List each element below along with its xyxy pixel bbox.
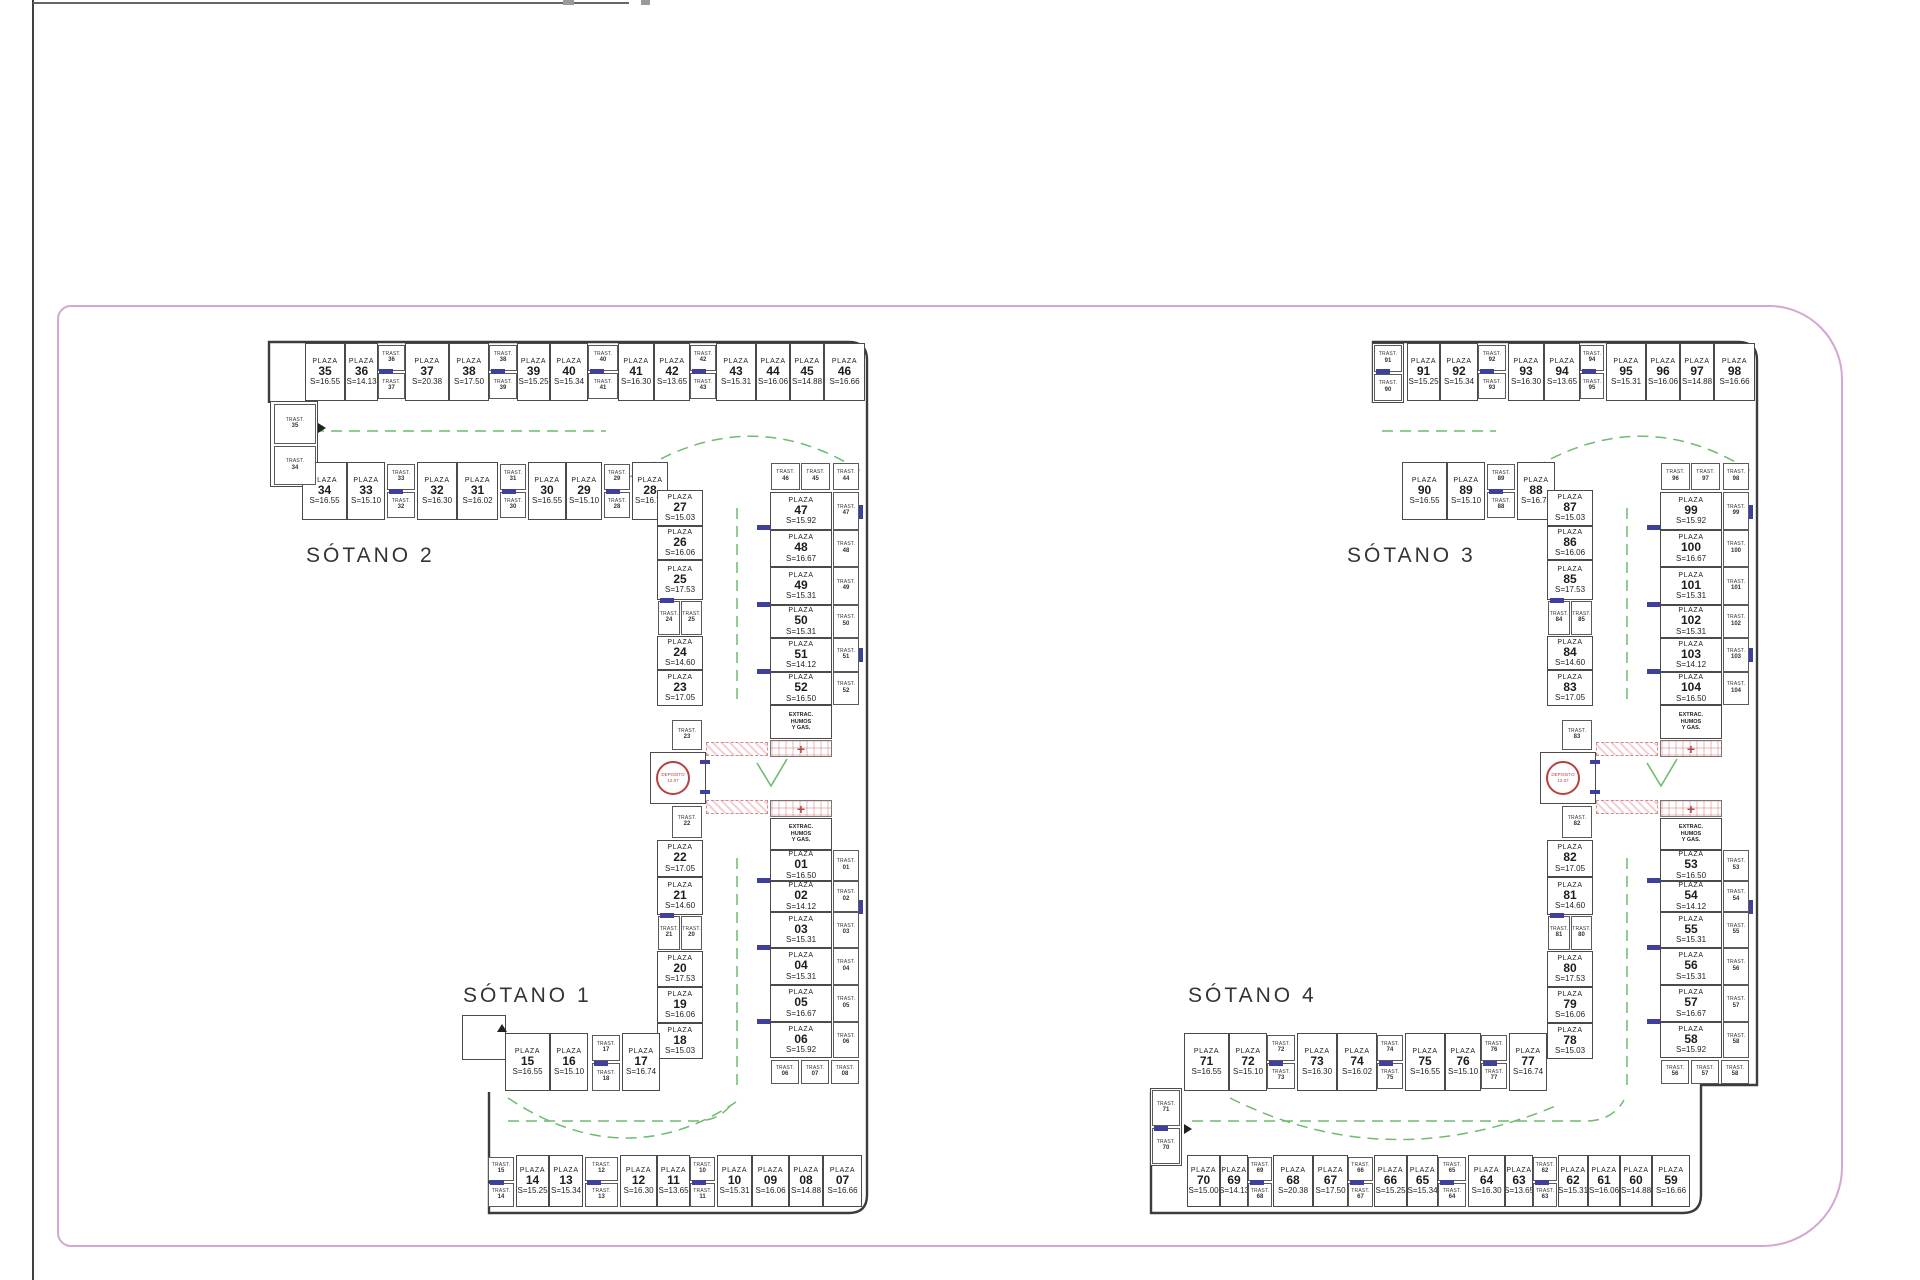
plaza-46: PLAZA46S=16.66 <box>824 343 865 401</box>
pn-text: 79 <box>1563 998 1576 1011</box>
pn-text: 65 <box>1416 1174 1429 1187</box>
extraction-room: EXTRAC.HUMOSY GAS. <box>1660 705 1722 739</box>
pa-text: S=14.12 <box>786 903 816 911</box>
plaza-87: PLAZA87S=15.03 <box>1547 490 1593 526</box>
pa-text: S=15.92 <box>1676 517 1706 525</box>
plaza-22: PLAZA22S=17.05 <box>657 840 703 877</box>
trast-31: TRAST.31 <box>500 464 526 490</box>
cross-text: + <box>797 742 805 756</box>
pa-text: S=15.10 <box>351 497 381 505</box>
pn-text: 48 <box>794 541 807 554</box>
pa-text: S=16.55 <box>532 497 562 505</box>
trast-06: TRAST.06 <box>771 1060 799 1084</box>
plaza-56: PLAZA56S=15.31 <box>1660 948 1722 985</box>
plaza-100: PLAZA100S=16.67 <box>1660 530 1722 567</box>
trast-01: TRAST.01 <box>833 850 859 881</box>
tn-text: 01 <box>843 865 850 872</box>
exl-text: EXTRAC. <box>1679 712 1703 719</box>
plaza-11: PLAZA11S=13.65 <box>657 1155 690 1207</box>
pn-text: 07 <box>836 1174 849 1187</box>
stair-hatch-area: + <box>1660 740 1722 757</box>
pa-text: S=15.03 <box>665 1047 695 1055</box>
stair-core-room: DEPOSITO12.07 <box>650 752 706 804</box>
plaza-13: PLAZA13S=15.34 <box>549 1155 583 1207</box>
pn-text: 17 <box>634 1055 647 1068</box>
trast-20: TRAST.20 <box>681 916 702 950</box>
floor-plan: PLAZA35S=16.55PLAZA36S=14.13PLAZA37S=20.… <box>0 0 1920 1280</box>
tn-text: 54 <box>1733 896 1740 903</box>
pa-text: S=15.92 <box>786 517 816 525</box>
level-label: SÓTANO 1 <box>463 984 592 1008</box>
plaza-07: PLAZA07S=16.66 <box>823 1155 862 1207</box>
trast-07: TRAST.07 <box>801 1060 829 1084</box>
tn-text: 62 <box>1542 1168 1549 1175</box>
door-mark <box>1550 913 1564 918</box>
pa-text: S=17.05 <box>1555 694 1585 702</box>
pa-text: S=16.74 <box>626 1068 656 1076</box>
exl-text: HUMOS <box>791 831 811 838</box>
pa-text: S=16.55 <box>512 1068 542 1076</box>
door-mark <box>859 505 863 519</box>
door-mark <box>1480 369 1494 374</box>
tn-text: 51 <box>843 654 850 661</box>
plaza-74: PLAZA74S=16.02 <box>1337 1033 1377 1091</box>
trast-72: TRAST.72 <box>1267 1035 1295 1061</box>
door-mark <box>660 598 674 603</box>
tn-text: 77 <box>1491 1075 1498 1082</box>
door-mark <box>1535 1180 1549 1185</box>
trast-10: TRAST.10 <box>690 1157 715 1181</box>
pa-text: S=15.34 <box>554 378 584 386</box>
pn-text: 02 <box>794 889 807 902</box>
plaza-101: PLAZA101S=15.31 <box>1660 567 1722 605</box>
trast-35: TRAST.35 <box>274 404 316 444</box>
pa-text: S=16.30 <box>1471 1187 1501 1195</box>
tn-text: 88 <box>1498 504 1505 511</box>
pa-text: S=15.25 <box>518 378 548 386</box>
pa-text: S=15.34 <box>1444 378 1474 386</box>
pn-text: 14 <box>526 1174 539 1187</box>
stair-core-circle: DEPOSITO12.07 <box>1546 761 1580 795</box>
pn-text: 94 <box>1555 365 1568 378</box>
plaza-104: PLAZA104S=16.50 <box>1660 672 1722 705</box>
door-mark <box>859 648 863 662</box>
door-mark <box>587 1180 601 1185</box>
plaza-102: PLAZA102S=15.31 <box>1660 605 1722 638</box>
trast-68: TRAST.68 <box>1248 1183 1272 1207</box>
pa-text: S=16.06 <box>1589 1187 1619 1195</box>
pa-text: S=16.66 <box>1656 1187 1686 1195</box>
pn-text: 37 <box>420 365 433 378</box>
exl-text: HUMOS <box>1681 831 1701 838</box>
tn-text: 73 <box>1278 1075 1285 1082</box>
tn-text: 63 <box>1542 1194 1549 1201</box>
pn-text: 51 <box>794 648 807 661</box>
plaza-14: PLAZA14S=15.25 <box>516 1155 549 1207</box>
level-label: SÓTANO 2 <box>306 544 435 568</box>
pa-text: S=13.65 <box>1547 378 1577 386</box>
plaza-99: PLAZA99S=15.92 <box>1660 492 1722 530</box>
pa-text: S=15.25 <box>1375 1187 1405 1195</box>
trast-62: TRAST.62 <box>1533 1157 1557 1181</box>
tn-text: 35 <box>292 423 299 430</box>
pn-text: 77 <box>1521 1055 1534 1068</box>
pa-text: S=15.92 <box>786 1046 816 1054</box>
tn-text: 71 <box>1163 1107 1170 1114</box>
plaza-82: PLAZA82S=17.05 <box>1547 840 1593 877</box>
pn-text: 81 <box>1563 889 1576 902</box>
plaza-62: PLAZA62S=15.31 <box>1558 1155 1588 1207</box>
plaza-30: PLAZA30S=16.55 <box>528 462 566 520</box>
plaza-65: PLAZA65S=15.34 <box>1407 1155 1438 1207</box>
pa-text: S=16.30 <box>623 1187 653 1195</box>
trast-57: TRAST.57 <box>1723 985 1749 1022</box>
plaza-03: PLAZA03S=15.31 <box>770 912 832 948</box>
plaza-91: PLAZA91S=15.25 <box>1407 343 1440 401</box>
pn-text: 75 <box>1418 1055 1431 1068</box>
tn-text: 56 <box>1672 1071 1679 1078</box>
trast-50: TRAST.50 <box>833 605 859 638</box>
pa-text: S=16.50 <box>786 695 816 703</box>
pn-text: 27 <box>673 501 686 514</box>
ramp-hatch-area <box>706 800 768 814</box>
pn-text: 23 <box>673 681 686 694</box>
plaza-80: PLAZA80S=17.53 <box>1547 951 1593 987</box>
entry-arrow-right <box>1184 1124 1192 1134</box>
trast-13: TRAST.13 <box>585 1183 618 1207</box>
plaza-01: PLAZA01S=16.50 <box>770 850 832 881</box>
door-mark <box>1154 1126 1168 1131</box>
pn-text: 58 <box>1684 1033 1697 1046</box>
pn-text: 47 <box>794 504 807 517</box>
trast-25: TRAST.25 <box>681 601 702 635</box>
trast-06: TRAST.06 <box>833 1022 859 1058</box>
tn-text: 96 <box>1672 476 1679 483</box>
pn-text: 28 <box>643 484 656 497</box>
plaza-20: PLAZA20S=17.53 <box>657 951 703 987</box>
exl-text: HUMOS <box>1681 719 1701 726</box>
plaza-43: PLAZA43S=15.31 <box>716 343 756 401</box>
plaza-89: PLAZA89S=15.10 <box>1447 462 1485 520</box>
pa-text: S=16.67 <box>786 1010 816 1018</box>
pn-text: 86 <box>1563 536 1576 549</box>
tn-text: 76 <box>1491 1047 1498 1054</box>
trast-02: TRAST.02 <box>833 881 859 912</box>
door-mark <box>1749 900 1753 914</box>
pn-text: 16 <box>562 1055 575 1068</box>
tn-text: 94 <box>1589 357 1596 364</box>
pn-text: 100 <box>1681 541 1701 554</box>
pn-text: 59 <box>1664 1174 1677 1187</box>
pa-text: S=15.10 <box>554 1068 584 1076</box>
pn-text: 26 <box>673 536 686 549</box>
trast-23: TRAST.23 <box>672 720 702 750</box>
pa-text: S=15.00 <box>1188 1187 1218 1195</box>
pa-text: S=15.31 <box>719 1187 749 1195</box>
plaza-70: PLAZA70S=15.00 <box>1187 1155 1220 1207</box>
plaza-47: PLAZA47S=15.92 <box>770 492 832 530</box>
plaza-93: PLAZA93S=16.30 <box>1508 343 1544 401</box>
trast-36: TRAST.36 <box>378 345 405 371</box>
pa-text: S=17.50 <box>454 378 484 386</box>
pa-text: S=15.10 <box>1451 497 1481 505</box>
pa-text: S=16.30 <box>1511 378 1541 386</box>
plaza-44: PLAZA44S=16.06 <box>756 343 790 401</box>
stair-hatch-area: + <box>770 800 832 817</box>
ramp-hatch-area <box>1596 742 1658 756</box>
plaza-32: PLAZA32S=16.30 <box>417 462 457 520</box>
trast-101: TRAST.101 <box>1723 567 1749 605</box>
pn-text: 96 <box>1656 365 1669 378</box>
plaza-36: PLAZA36S=14.13 <box>345 343 378 401</box>
cross-text: + <box>797 802 805 816</box>
pa-text: S=16.74 <box>1513 1068 1543 1076</box>
pn-text: 64 <box>1480 1174 1493 1187</box>
plaza-103: PLAZA103S=14.12 <box>1660 638 1722 672</box>
trast-08: TRAST.08 <box>831 1060 859 1084</box>
tn-text: 84 <box>1556 617 1563 624</box>
pa-text: S=15.31 <box>1558 1187 1588 1195</box>
tn-text: 39 <box>500 385 507 392</box>
pa-text: S=20.38 <box>412 378 442 386</box>
door-mark <box>1647 602 1660 607</box>
plaza-42: PLAZA42S=13.65 <box>654 343 690 401</box>
tn-text: 47 <box>843 510 850 517</box>
trast-76: TRAST.76 <box>1481 1035 1507 1061</box>
pn-text: 90 <box>1418 484 1431 497</box>
pa-text: S=16.02 <box>1342 1068 1372 1076</box>
pa-text: S=15.31 <box>786 973 816 981</box>
pn-text: 44 <box>766 365 779 378</box>
pa-text: S=16.55 <box>1410 1068 1440 1076</box>
trast-40: TRAST.40 <box>588 345 618 371</box>
plaza-95: PLAZA95S=15.31 <box>1606 343 1646 401</box>
pa-text: S=14.60 <box>665 902 695 910</box>
exl-text: Y GAS. <box>1682 725 1701 732</box>
plaza-64: PLAZA64S=16.30 <box>1468 1155 1505 1207</box>
trast-74: TRAST.74 <box>1377 1035 1403 1061</box>
pa-text: S=15.31 <box>786 628 816 636</box>
plaza-94: PLAZA94S=13.65 <box>1544 343 1580 401</box>
pa-text: S=15.34 <box>1407 1187 1437 1195</box>
tn-text: 102 <box>1731 621 1741 628</box>
pa-text: S=16.67 <box>1676 1010 1706 1018</box>
pa-text: S=15.25 <box>517 1187 547 1195</box>
trast-97: TRAST.97 <box>1691 463 1720 490</box>
pn-text: 22 <box>673 851 686 864</box>
pn-text: 102 <box>1681 614 1701 627</box>
tn-text: 30 <box>510 504 517 511</box>
door-mark <box>594 1061 608 1066</box>
trast-43: TRAST.43 <box>690 373 716 399</box>
pn-text: 80 <box>1563 962 1576 975</box>
tn-text: 14 <box>498 1194 505 1201</box>
pn-text: 89 <box>1459 484 1472 497</box>
ramp-hatch-area <box>706 742 768 756</box>
trast-58: TRAST.58 <box>1723 1022 1749 1058</box>
trast-18: TRAST.18 <box>592 1063 620 1091</box>
trast-64: TRAST.64 <box>1438 1183 1466 1207</box>
pn-text: 30 <box>540 484 553 497</box>
tn-text: 03 <box>843 929 850 936</box>
pa-text: S=17.53 <box>1555 586 1585 594</box>
trast-63: TRAST.63 <box>1533 1183 1557 1207</box>
tn-text: 65 <box>1449 1168 1456 1175</box>
trast-83: TRAST.83 <box>1562 720 1592 750</box>
pn-text: 74 <box>1350 1055 1363 1068</box>
plaza-10: PLAZA10S=15.31 <box>717 1155 752 1207</box>
trast-30: TRAST.30 <box>500 492 526 518</box>
plaza-73: PLAZA73S=16.30 <box>1297 1033 1337 1091</box>
plaza-16: PLAZA16S=15.10 <box>550 1033 588 1091</box>
pn-text: 20 <box>673 962 686 975</box>
pn-text: 29 <box>577 484 590 497</box>
plaza-68: PLAZA68S=20.38 <box>1273 1155 1313 1207</box>
sheet-edge-fragment <box>563 0 574 5</box>
tn-text: 64 <box>1449 1194 1456 1201</box>
pn-text: 06 <box>794 1033 807 1046</box>
pa-text: S=15.31 <box>721 378 751 386</box>
door-mark <box>1590 790 1600 794</box>
trast-39: TRAST.39 <box>489 373 517 399</box>
plaza-45: PLAZA45S=14.88 <box>790 343 824 401</box>
trast-52: TRAST.52 <box>833 672 859 705</box>
plaza-24: PLAZA24S=14.60 <box>657 636 703 670</box>
tn-text: 20 <box>688 932 695 939</box>
tn-text: 13 <box>598 1194 605 1201</box>
tn-text: 17 <box>603 1047 610 1054</box>
stair-core-circle: DEPOSITO12.07 <box>656 761 690 795</box>
pa-text: S=15.31 <box>786 936 816 944</box>
plaza-33: PLAZA33S=15.10 <box>347 462 385 520</box>
pa-text: S=16.66 <box>829 378 859 386</box>
pa-text: S=14.12 <box>1676 903 1706 911</box>
pn-text: 72 <box>1241 1055 1254 1068</box>
pn-text: 70 <box>1197 1174 1210 1187</box>
plaza-76: PLAZA76S=15.10 <box>1445 1033 1481 1091</box>
pn-text: 103 <box>1681 648 1701 661</box>
pn-text: 67 <box>1324 1174 1337 1187</box>
plaza-26: PLAZA26S=16.06 <box>657 526 703 560</box>
pa-text: S=16.30 <box>1302 1068 1332 1076</box>
pn-text: 95 <box>1619 365 1632 378</box>
plaza-35: PLAZA35S=16.55 <box>305 343 345 401</box>
pa-text: S=15.10 <box>1448 1068 1478 1076</box>
tn-text: 93 <box>1489 385 1496 392</box>
trast-91: TRAST.91 <box>1374 345 1402 372</box>
level-label: SÓTANO 3 <box>1347 544 1476 568</box>
pa-text: S=16.50 <box>1676 695 1706 703</box>
tn-text: 55 <box>1733 929 1740 936</box>
tn-text: 101 <box>1731 585 1741 592</box>
plaza-27: PLAZA27S=15.03 <box>657 490 703 526</box>
cross-text: + <box>1687 742 1695 756</box>
plaza-08: PLAZA08S=14.88 <box>789 1155 823 1207</box>
pn-text: 09 <box>764 1174 777 1187</box>
pa-text: S=15.03 <box>665 514 695 522</box>
tn-text: 85 <box>1578 617 1585 624</box>
door-mark <box>606 489 620 494</box>
plaza-19: PLAZA19S=16.06 <box>657 987 703 1023</box>
pn-text: 53 <box>1684 858 1697 871</box>
plaza-84: PLAZA84S=14.60 <box>1547 636 1593 670</box>
pn-text: 11 <box>667 1174 680 1187</box>
door-mark <box>1749 505 1753 519</box>
tn-text: 15 <box>498 1168 505 1175</box>
tn-text: 83 <box>1574 734 1581 741</box>
pa-text: S=14.12 <box>1676 661 1706 669</box>
tn-text: 23 <box>684 734 691 741</box>
pa-text: S=14.88 <box>792 378 822 386</box>
door-mark <box>757 878 770 883</box>
pn-text: 46 <box>838 365 851 378</box>
plaza-05: PLAZA05S=16.67 <box>770 985 832 1022</box>
pn-text: 92 <box>1452 365 1465 378</box>
tn-text: 98 <box>1733 476 1740 483</box>
trast-38: TRAST.38 <box>489 345 517 371</box>
cross-text: + <box>1687 802 1695 816</box>
pn-text: 15 <box>521 1055 534 1068</box>
tn-text: 04 <box>843 966 850 973</box>
trast-98: TRAST.98 <box>1723 463 1749 490</box>
tn-text: 08 <box>842 1071 849 1078</box>
plaza-57: PLAZA57S=16.67 <box>1660 985 1722 1022</box>
ramp-hatch-area <box>1596 800 1658 814</box>
pa-text: S=13.65 <box>1505 1187 1533 1195</box>
plaza-85: PLAZA85S=17.53 <box>1547 560 1593 600</box>
pn-text: 03 <box>794 923 807 936</box>
trast-80: TRAST.80 <box>1571 916 1592 950</box>
tn-text: 89 <box>1498 476 1505 483</box>
trast-44: TRAST.44 <box>833 463 859 490</box>
pn-text: 19 <box>673 998 686 1011</box>
tn-text: 90 <box>1385 387 1392 394</box>
trast-03: TRAST.03 <box>833 912 859 948</box>
tn-text: 43 <box>700 385 707 392</box>
plaza-98: PLAZA98S=16.66 <box>1714 343 1755 401</box>
tn-text: 32 <box>398 504 405 511</box>
plaza-48: PLAZA48S=16.67 <box>770 530 832 567</box>
trast-56: TRAST.56 <box>1723 948 1749 985</box>
trast-53: TRAST.53 <box>1723 850 1749 881</box>
pa-text: S=16.06 <box>1555 1011 1585 1019</box>
trast-70: TRAST.70 <box>1152 1128 1180 1164</box>
pa-text: S=14.88 <box>791 1187 821 1195</box>
trast-100: TRAST.100 <box>1723 530 1749 567</box>
tn-text: 104 <box>1731 688 1741 695</box>
tn-text: 68 <box>1257 1194 1264 1201</box>
plaza-71: PLAZA71S=16.55 <box>1184 1033 1229 1091</box>
pa-text: S=15.31 <box>1676 592 1706 600</box>
plaza-51: PLAZA51S=14.12 <box>770 638 832 672</box>
tn-text: 69 <box>1257 1168 1264 1175</box>
tn-text: 91 <box>1385 358 1392 365</box>
trast-75: TRAST.75 <box>1377 1063 1403 1089</box>
plaza-50: PLAZA50S=15.31 <box>770 605 832 638</box>
pn-text: 71 <box>1200 1055 1213 1068</box>
door-mark <box>1647 1019 1660 1024</box>
plaza-23: PLAZA23S=17.05 <box>657 670 703 706</box>
pa-text: S=13.65 <box>657 378 687 386</box>
trast-104: TRAST.104 <box>1723 672 1749 705</box>
door-mark <box>1647 669 1660 674</box>
pa-text: S=17.53 <box>665 586 695 594</box>
pn-text: 25 <box>673 573 686 586</box>
trast-22: TRAST.22 <box>672 806 702 838</box>
tn-text: 21 <box>666 932 673 939</box>
door-mark <box>490 1180 504 1185</box>
door-mark <box>502 489 516 494</box>
